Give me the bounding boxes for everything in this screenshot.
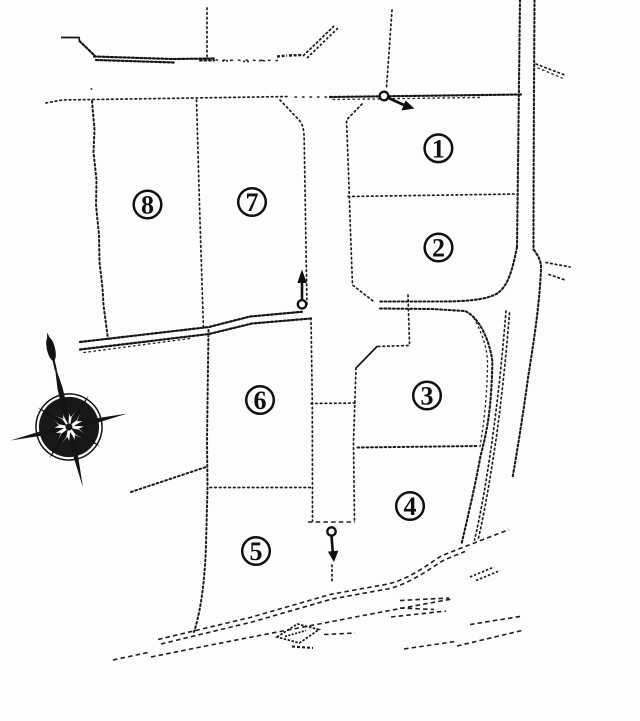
svg-text:7: 7 bbox=[246, 188, 259, 217]
svg-text:1: 1 bbox=[432, 134, 445, 163]
svg-text:4: 4 bbox=[404, 492, 417, 521]
svg-text:8: 8 bbox=[141, 191, 154, 220]
svg-text:2: 2 bbox=[432, 234, 445, 263]
svg-text:6: 6 bbox=[254, 386, 267, 415]
svg-text:3: 3 bbox=[421, 382, 434, 411]
svg-text:5: 5 bbox=[250, 537, 263, 566]
